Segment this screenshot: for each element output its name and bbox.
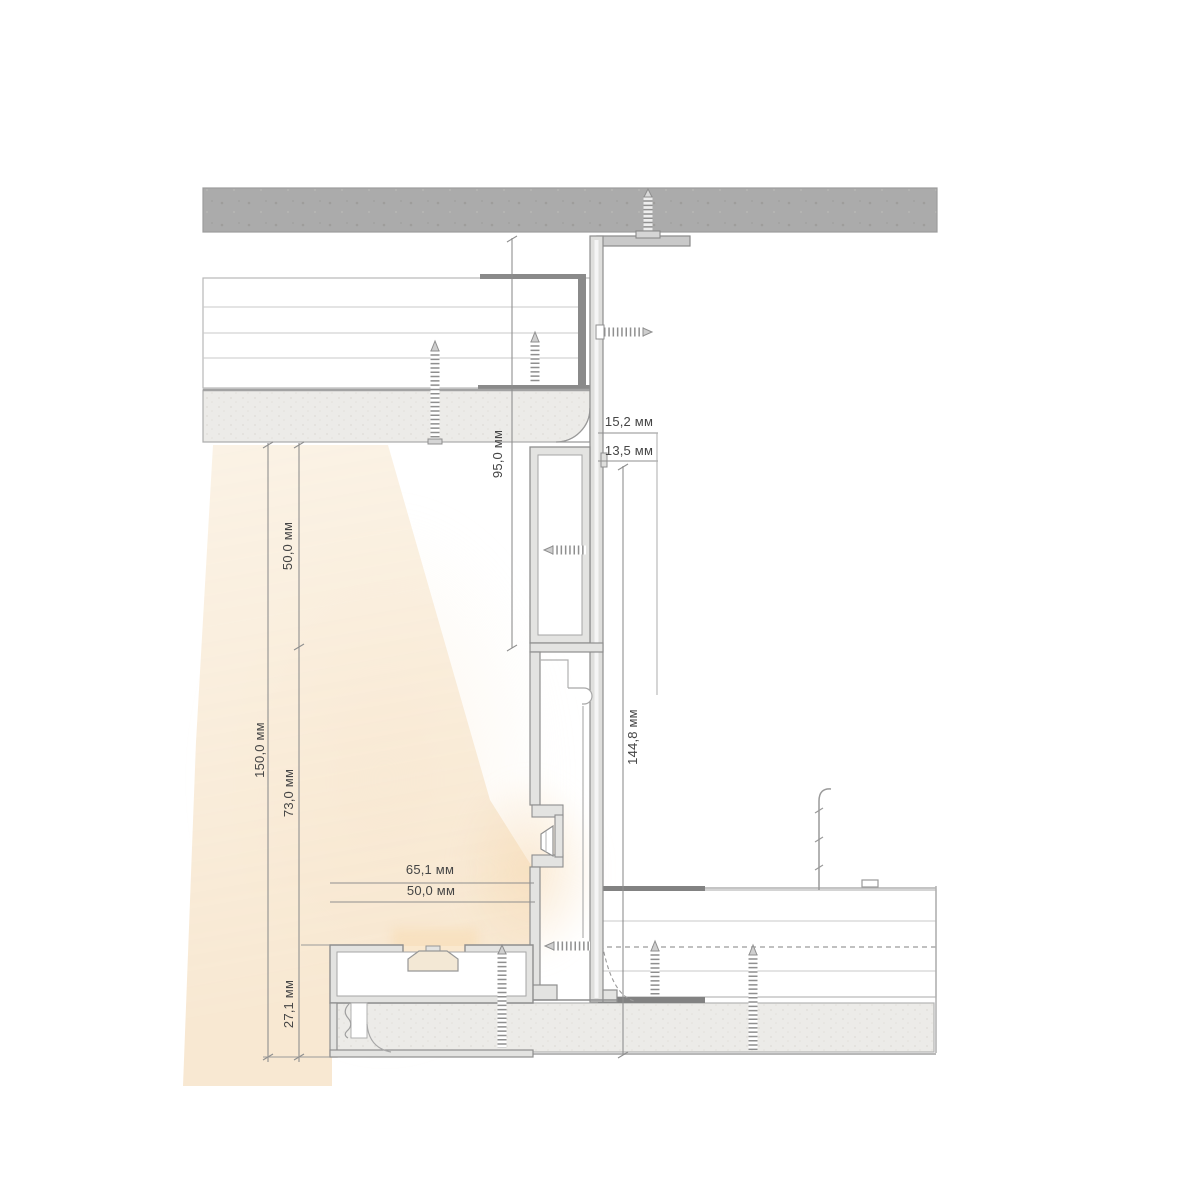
bracket-screw: [596, 325, 652, 339]
hanger-hook: [819, 789, 831, 890]
snap-clip: [408, 951, 458, 971]
channel-screw: [544, 546, 586, 554]
pocket-back: [578, 274, 586, 391]
wall-screw-long: [749, 945, 757, 1050]
metal-strap-top: [598, 886, 705, 891]
dim-label-offset-top: 50,0 мм: [280, 501, 296, 591]
dim-label-profile-height: 144,8 мм: [625, 692, 641, 782]
groove: [351, 1003, 367, 1038]
profile-foot-left: [530, 985, 557, 1000]
section-drawing: [0, 0, 1200, 1200]
wall-screw-short: [651, 941, 659, 996]
lower-screw: [545, 942, 590, 950]
dim-label-plinth-height: 27,1 мм: [281, 959, 297, 1049]
dim-label-top-gap: 15,2 мм: [584, 414, 674, 430]
led-holder: [532, 805, 563, 867]
dim-label-width-inner: 50,0 мм: [386, 883, 476, 899]
concrete-slab: [203, 188, 937, 232]
profile-hook: [568, 688, 592, 704]
dim-label-bottom-gap: 13,5 мм: [584, 443, 674, 459]
drawing-canvas: 15,2 мм 13,5 мм 95,0 мм 144,8 мм 50,0 мм…: [0, 0, 1200, 1200]
clip-tab: [862, 880, 878, 887]
base-layer: [334, 1003, 936, 1054]
pocket-flange-top: [480, 274, 586, 279]
plinth-screw: [498, 945, 506, 1048]
dim-label-width-outer: 65,1 мм: [385, 862, 475, 878]
plaster-finish: [203, 390, 590, 442]
ceiling-screw-short: [531, 332, 539, 384]
profile-upper-channel: [530, 447, 590, 643]
led-lens: [541, 826, 553, 856]
dim-label-upper-height: 95,0 мм: [490, 409, 506, 499]
dim-label-mid-offset: 73,0 мм: [281, 748, 297, 838]
dim-label-total-height: 150,0 мм: [252, 705, 268, 795]
